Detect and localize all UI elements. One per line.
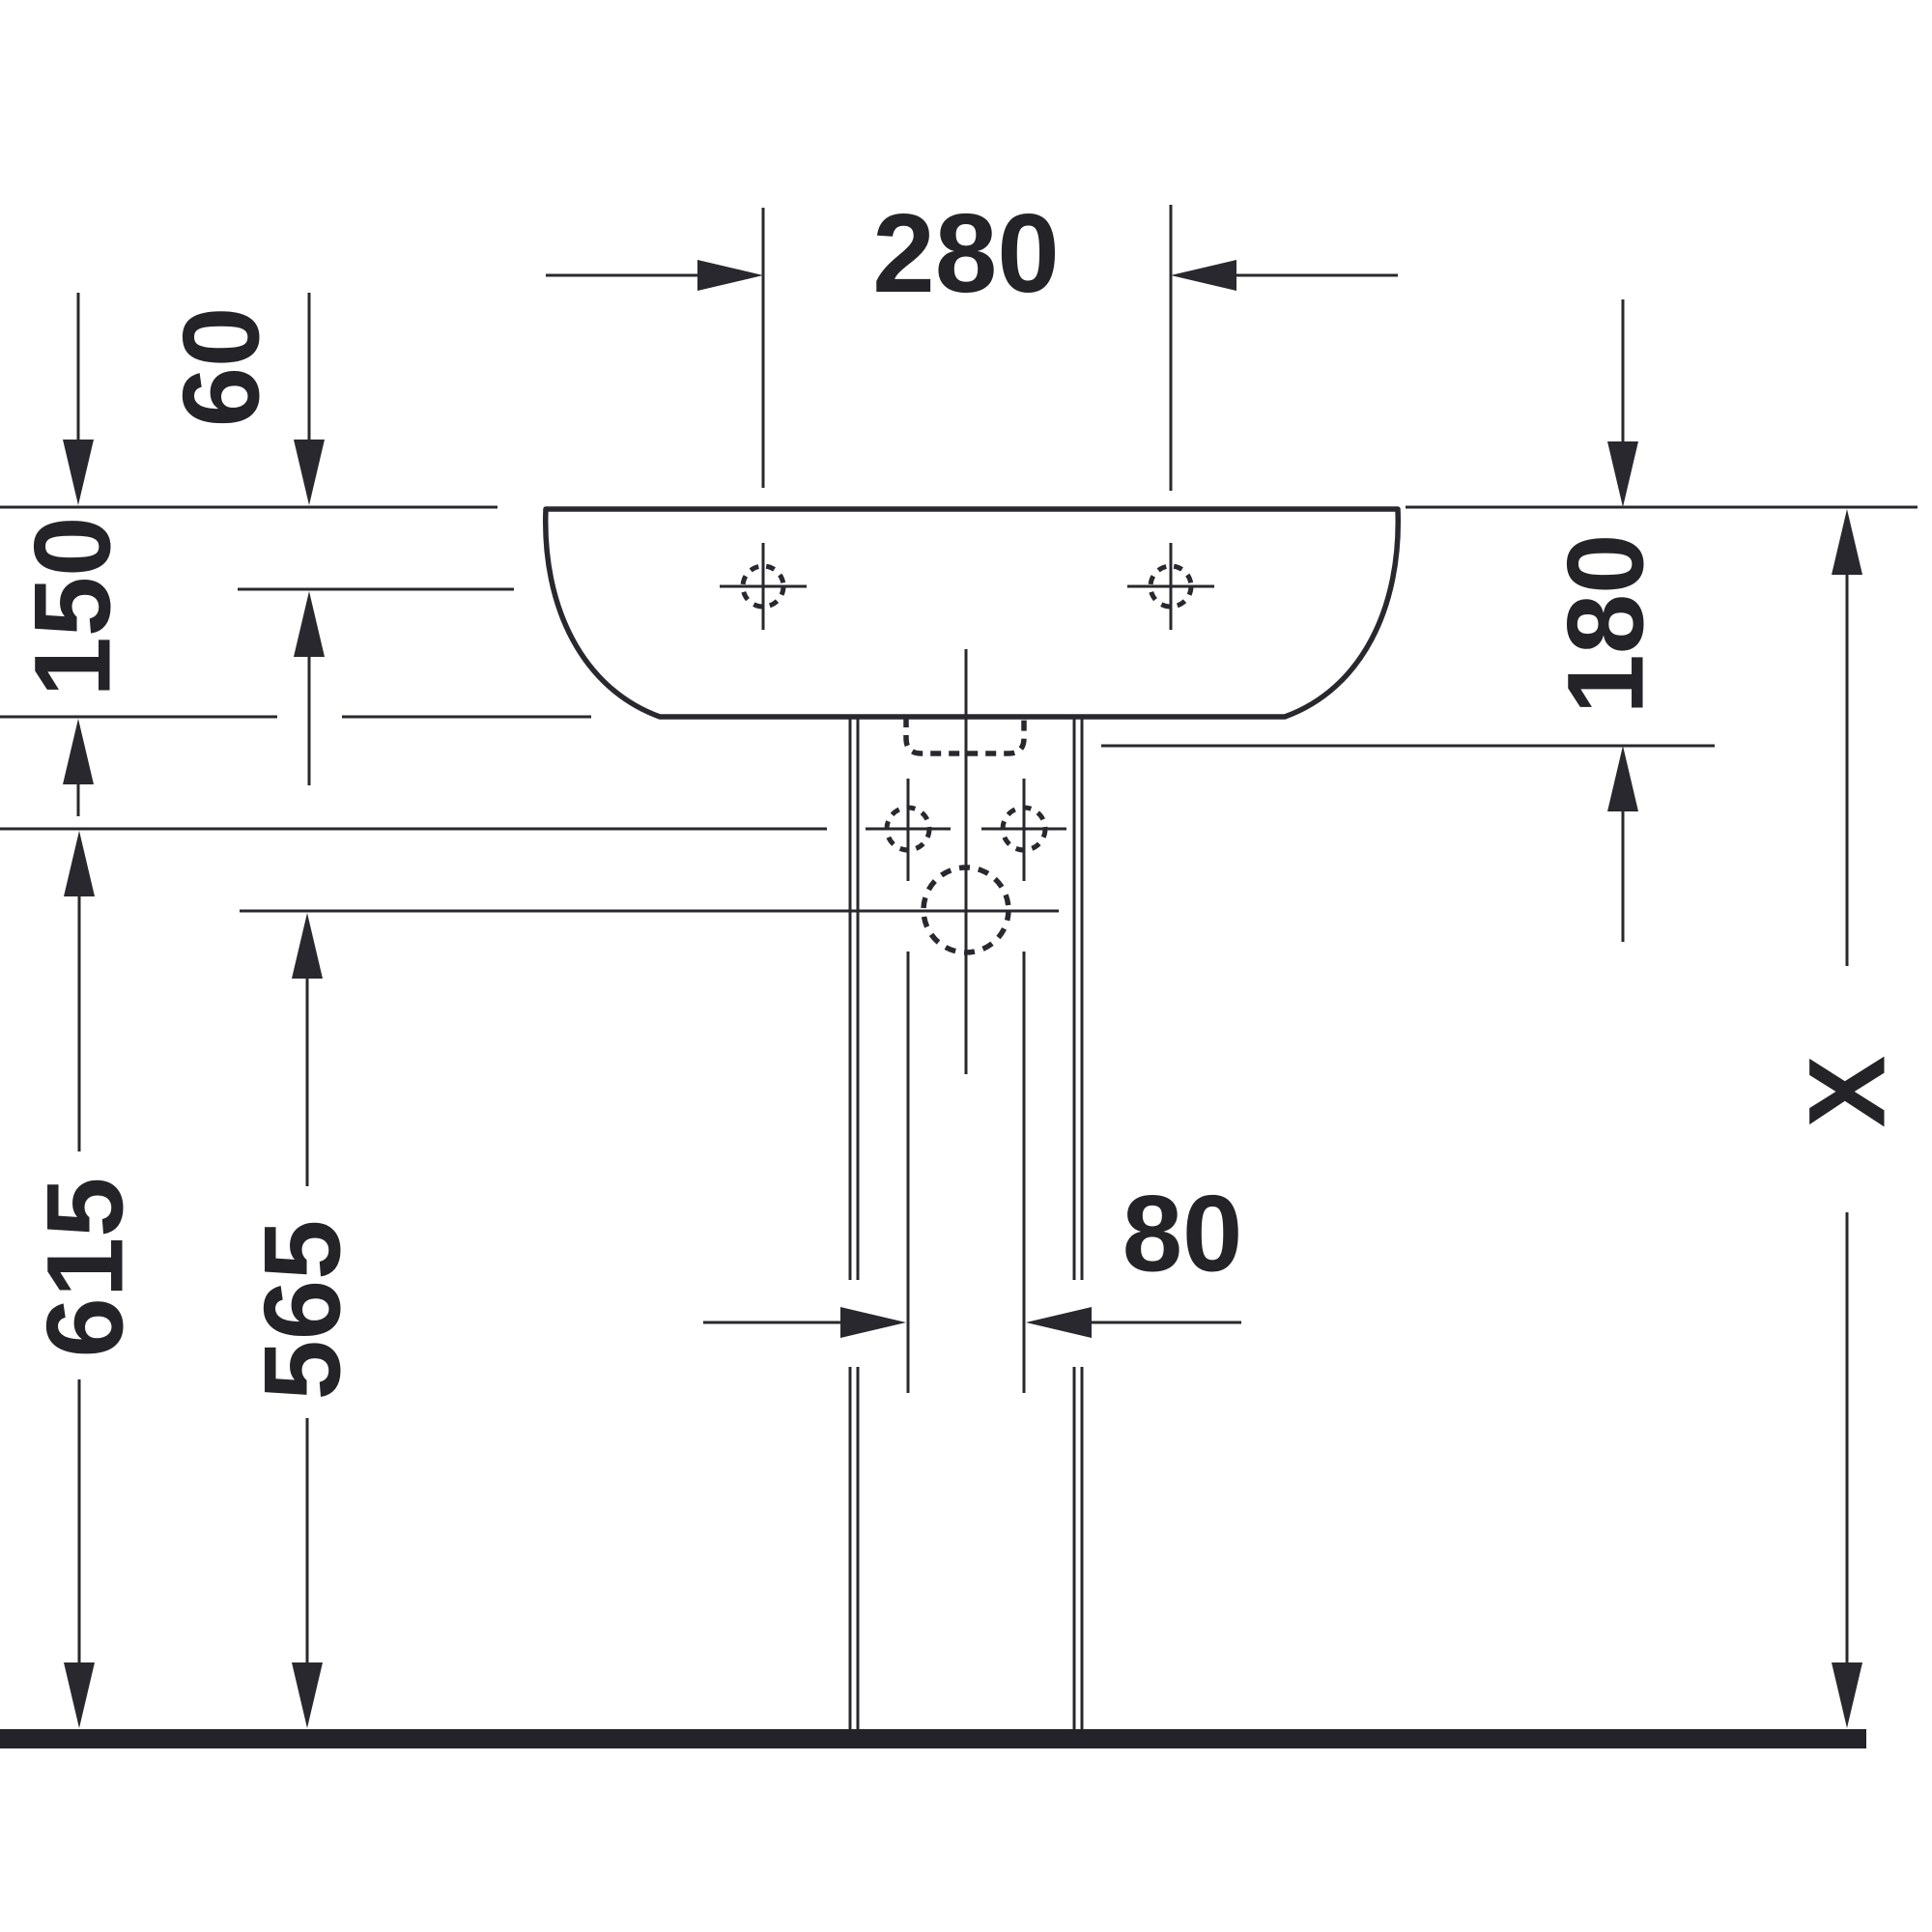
dim-565-label: 565 — [242, 1220, 363, 1401]
dim-80-arrow-right-icon — [840, 1307, 906, 1338]
dim-x-arrow-up-icon — [1832, 509, 1862, 575]
technical-drawing-canvas: 280 60 150 180 615 565 — [0, 0, 1932, 1932]
dim-pedestal-channel-width: 80 — [703, 1174, 1242, 1339]
dim-rim-height-variable: X — [1787, 509, 1908, 1728]
dim-tap-hole-spacing: 280 — [546, 190, 1398, 491]
dim-rim-to-back-ledge: 180 — [1546, 299, 1666, 942]
dim-rim-to-tap-hole: 60 — [161, 293, 326, 785]
dim-180-arrow-up-icon — [1607, 746, 1638, 811]
dim-80-arrow-left-icon — [1026, 1307, 1092, 1338]
dim-fixing-hole-height: 615 — [25, 831, 146, 1728]
dim-615-arrow-up-icon — [64, 831, 95, 896]
dim-615-arrow-down-icon — [64, 1662, 95, 1728]
dim-basin-front-height: 150 — [13, 293, 133, 816]
dim-150-arrow-down-icon — [63, 440, 94, 505]
dim-180-arrow-down-icon — [1607, 441, 1638, 507]
dim-60-arrow-down-icon — [294, 440, 325, 505]
washbasin-dimension-diagram: 280 60 150 180 615 565 — [0, 0, 1932, 1932]
left-fixing-hole — [866, 779, 951, 881]
dim-60-arrow-up-icon — [294, 591, 325, 657]
dim-180-label: 180 — [1546, 534, 1666, 715]
dim-565-arrow-down-icon — [292, 1662, 323, 1728]
right-tap-hole — [1127, 543, 1214, 630]
dim-150-label: 150 — [13, 517, 133, 697]
floor-line — [0, 1729, 1866, 1748]
dim-150-arrow-up-icon — [63, 719, 94, 784]
dim-drain-center-height: 565 — [242, 913, 363, 1728]
dim-615-label: 615 — [25, 1178, 146, 1358]
left-tap-hole — [720, 543, 807, 630]
dim-280-arrow-right-icon — [697, 260, 763, 291]
dim-280-label: 280 — [872, 190, 1060, 316]
dim-280-arrow-left-icon — [1171, 260, 1236, 291]
dim-565-arrow-up-icon — [292, 913, 323, 979]
right-fixing-hole — [981, 779, 1066, 881]
dim-x-label: X — [1787, 1056, 1908, 1128]
dim-80-label: 80 — [1122, 1174, 1243, 1294]
basin-outline — [546, 509, 1399, 717]
dim-60-label: 60 — [161, 307, 282, 428]
dim-x-arrow-down-icon — [1832, 1662, 1862, 1728]
